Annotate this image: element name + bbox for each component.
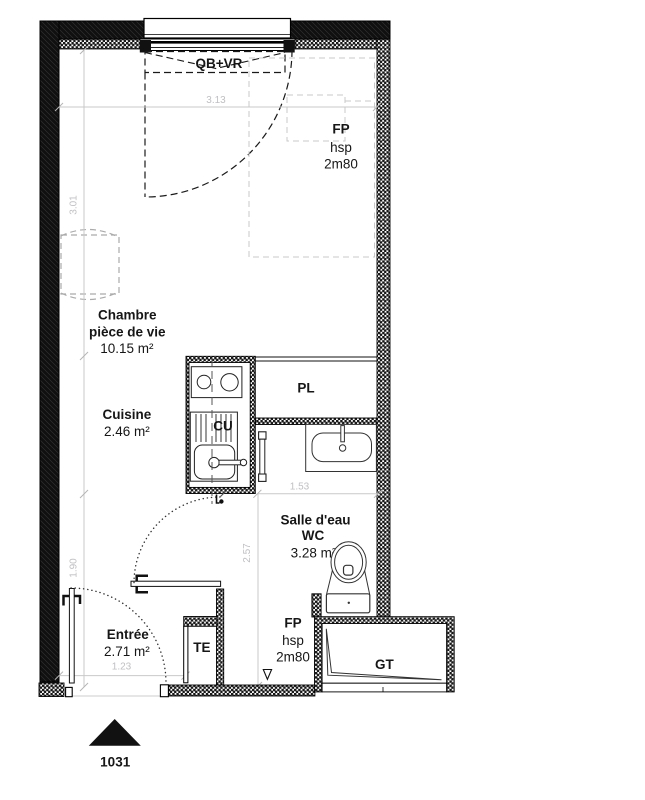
svg-text:CU: CU: [213, 419, 233, 434]
svg-text:Entrée: Entrée: [107, 627, 150, 642]
svg-text:GT: GT: [375, 657, 395, 672]
svg-text:2m80: 2m80: [324, 157, 358, 172]
svg-text:Cuisine: Cuisine: [103, 407, 152, 422]
svg-text:FP: FP: [332, 122, 349, 137]
svg-text:1031: 1031: [100, 755, 131, 770]
svg-text:2.57: 2.57: [242, 543, 253, 563]
svg-text:2.46 m²: 2.46 m²: [104, 424, 150, 439]
svg-text:1.90: 1.90: [69, 558, 80, 578]
svg-text:2m80: 2m80: [276, 650, 310, 665]
svg-text:PL: PL: [297, 381, 314, 396]
svg-text:10.15 m²: 10.15 m²: [100, 341, 154, 356]
svg-text:hsp: hsp: [330, 140, 352, 155]
svg-text:QB+VR: QB+VR: [196, 56, 243, 71]
svg-text:Chambre: Chambre: [98, 308, 157, 323]
svg-text:3.28 m²: 3.28 m²: [291, 546, 337, 561]
svg-text:hsp: hsp: [282, 633, 304, 648]
svg-text:Salle d'eau: Salle d'eau: [281, 513, 351, 528]
svg-text:3.01: 3.01: [69, 195, 80, 215]
svg-text:3.13: 3.13: [206, 95, 226, 106]
svg-text:TE: TE: [193, 640, 210, 655]
svg-text:1.53: 1.53: [290, 482, 310, 493]
svg-text:pièce de vie: pièce de vie: [89, 325, 166, 340]
svg-text:WC: WC: [302, 528, 325, 543]
svg-text:1.23: 1.23: [112, 662, 132, 673]
svg-text:2.71 m²: 2.71 m²: [104, 644, 150, 659]
svg-text:FP: FP: [284, 616, 301, 631]
